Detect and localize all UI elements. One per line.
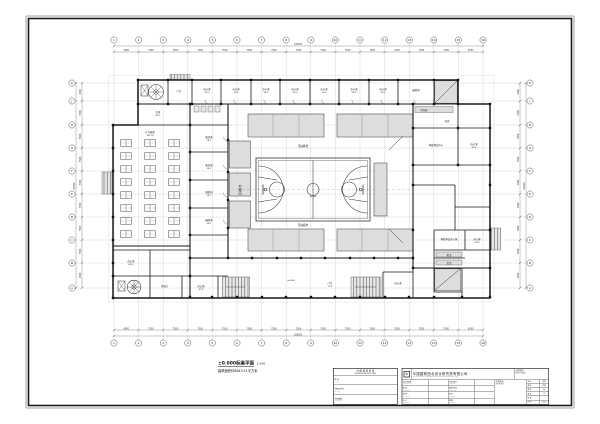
grid-bubble-label: 8 <box>285 341 287 345</box>
column <box>412 267 414 269</box>
room-area: 47.8 <box>199 289 204 291</box>
elevator-nw-x <box>141 85 148 96</box>
dim-text: 7500 <box>79 202 82 208</box>
grid-bubble-label: 11 <box>358 341 362 345</box>
column <box>167 79 169 81</box>
door-arc <box>264 100 268 104</box>
room-area: 77.8 <box>328 286 333 288</box>
dim-total: 61500 <box>73 182 76 190</box>
pingpong-table <box>169 140 180 146</box>
grid-bubble-label: 10 <box>333 38 337 42</box>
dim-total: 106500 <box>294 333 303 336</box>
room-area: 42.1 <box>156 115 161 117</box>
dim-text: 7500 <box>247 49 253 52</box>
column <box>189 275 191 277</box>
pingpong-table <box>121 205 132 211</box>
dim-text: 7500 <box>370 327 376 330</box>
door-arc <box>224 165 228 169</box>
wc-stall <box>194 106 199 112</box>
company-cell: 中国建筑西北设计研究院有限公司 CHINA NORTHWEST ARCHITEC… <box>411 369 514 380</box>
company-logo: 中 <box>402 369 411 380</box>
grid-bubble-label: 9 <box>310 38 312 42</box>
titleblock-signature-row: 设计总负责PROJECT CHIEF审 定APPROVED BY审 核CHECK… <box>402 380 548 404</box>
sig-label-en: DRAWN BY <box>449 402 474 403</box>
room-area: 761.74 <box>146 135 154 137</box>
signature-cell <box>429 398 448 404</box>
dim-text: 7500 <box>517 110 520 116</box>
column <box>191 79 193 81</box>
stand-label: 活动看台 <box>298 223 309 227</box>
room-label: 门厅 <box>328 281 333 285</box>
sig-label-en: PROJECT MGR. <box>449 389 474 390</box>
column <box>112 124 114 126</box>
drawing-note: 建筑面积约6843.51平方米 <box>218 368 338 373</box>
pingpong-table <box>169 231 180 237</box>
dim-text: 7500 <box>79 179 82 185</box>
dim-text: 4500 <box>124 327 130 330</box>
column <box>189 234 191 236</box>
column <box>285 296 287 298</box>
column <box>412 103 414 105</box>
column <box>489 184 491 186</box>
dim-text: 7500 <box>296 49 302 52</box>
column <box>189 124 191 126</box>
column <box>137 79 139 81</box>
spiral-stair-nw-treads <box>149 85 164 100</box>
level-annotation: ±0.000 <box>287 280 295 282</box>
grid-bubble-label: 12 <box>383 38 387 42</box>
drawing-scale: 1:200 <box>257 362 266 366</box>
drawing-title: ±0.000标高平面 <box>218 360 254 368</box>
column <box>397 103 399 105</box>
dim-text: 7500 <box>370 49 376 52</box>
dim-text: 7500 <box>79 225 82 231</box>
column <box>457 103 459 105</box>
dim-text: 7500 <box>517 225 520 231</box>
column <box>334 296 336 298</box>
stamp-row-sub: SEAL No. <box>335 390 397 391</box>
pingpong-table <box>145 153 156 159</box>
stamp-row-sub: VALID DATE <box>335 400 397 401</box>
pingpong-table <box>169 166 180 172</box>
dim-text: 7500 <box>79 248 82 254</box>
column <box>489 229 491 231</box>
dim-text: 4500 <box>517 89 520 95</box>
column <box>489 296 491 298</box>
room-area: 26.0 <box>322 92 327 94</box>
room-label: 体质测试中心 <box>429 143 444 147</box>
signature-cells-1 <box>429 380 449 404</box>
column <box>412 164 414 166</box>
grid-bubble-label: 15 <box>456 38 460 42</box>
sig-label-en: DESIGNED BY <box>403 402 428 403</box>
wc-stall <box>215 106 220 112</box>
sig-row: 设 计DESIGNED BY <box>402 398 428 404</box>
column <box>373 257 375 259</box>
signature-labels-left: 设计总负责PROJECT CHIEF审 定APPROVED BY审 核CHECK… <box>402 380 428 404</box>
stamp-title-en: REGISTERED ARCHITECT STAMP <box>334 373 397 375</box>
grid-bubble-label: F <box>529 169 531 173</box>
room-label: 办公室 <box>350 87 358 91</box>
dim-text: 7500 <box>517 133 520 139</box>
room-label: 更衣室 <box>205 135 213 139</box>
grid-bubble-label: E <box>529 192 531 196</box>
dim-text: 7500 <box>345 327 351 330</box>
column <box>189 296 191 298</box>
dim-text: 7500 <box>247 327 253 330</box>
column <box>368 79 370 81</box>
column <box>236 296 238 298</box>
grid-bubble-label: 13 <box>407 341 411 345</box>
room-label: 办公室 <box>127 259 135 263</box>
grid-bubble-label: 16 <box>481 38 485 42</box>
grid-bubble-label: 13 <box>407 38 411 42</box>
column <box>338 79 340 81</box>
column <box>461 296 463 298</box>
column <box>112 193 114 195</box>
project-name-cell: 工程名称: PROJECT NAME <box>514 369 548 380</box>
interior-steps <box>223 277 382 297</box>
grid-bubble-label: 14 <box>432 38 436 42</box>
grid-bubble-label: 10 <box>333 341 337 345</box>
pingpong-tables <box>121 140 180 237</box>
sig-label-en: PROJECT CHIEF <box>403 383 428 384</box>
pingpong-table <box>121 140 132 146</box>
movable-stage <box>374 163 387 216</box>
dim-text: 4500 <box>79 272 82 278</box>
dim-text: 7500 <box>517 248 520 254</box>
west-entry-steps <box>102 172 112 194</box>
arena-door-leaves <box>389 136 403 243</box>
mini-value: 04 <box>540 389 549 391</box>
column <box>457 127 459 129</box>
titleblock-main: 中 中国建筑西北设计研究院有限公司 CHINA NORTHWEST ARCHIT… <box>402 368 549 405</box>
grid-bubble-label: J <box>71 99 73 103</box>
door-arc <box>205 100 209 104</box>
grid-bubble-label: H <box>529 123 531 127</box>
pingpong-table <box>121 231 132 237</box>
sig-label-en: APPROVED BY <box>403 389 428 390</box>
grid-bubble-label: J <box>529 99 531 103</box>
column <box>384 296 386 298</box>
column <box>112 297 114 299</box>
dim-text: 7500 <box>394 49 400 52</box>
room-area: 28.7 <box>207 223 212 225</box>
room-area: 28.7 <box>207 195 212 197</box>
column <box>137 103 139 105</box>
titleblock-header-row: 中 中国建筑西北设计研究院有限公司 CHINA NORTHWEST ARCHIT… <box>402 369 548 380</box>
company-logo-icon: 中 <box>403 371 409 377</box>
stamp-row-sub: NAME <box>335 381 397 382</box>
room-area: 43.6 <box>475 242 480 244</box>
column <box>261 296 263 298</box>
dim-text: 7500 <box>148 49 154 52</box>
pingpong-table <box>169 218 180 224</box>
stamp-row: 有效期限VALID DATE <box>334 395 397 404</box>
column <box>227 199 229 201</box>
sheet-border-outer <box>26 16 574 408</box>
sheet-info-column: 专 业建 筑图 别建 施图 号04版 次A日 期比 例1:200 <box>527 380 548 404</box>
pingpong-table <box>169 205 180 211</box>
grid-bubble-label: 1 <box>113 341 115 345</box>
grid-bubble-label: 11 <box>358 38 362 42</box>
column <box>112 262 114 264</box>
column <box>112 275 114 277</box>
grid-bubble-label: 1 <box>113 38 115 42</box>
pingpong-table <box>121 218 132 224</box>
stamp-row: 姓 名NAME <box>334 375 397 385</box>
grid-bubble-label: 16 <box>481 341 485 345</box>
pingpong-table <box>169 179 180 185</box>
pingpong-table <box>169 192 180 198</box>
column <box>250 103 252 105</box>
column <box>412 127 414 129</box>
grid-bubble-label: C <box>529 238 531 242</box>
wc-stall <box>201 106 206 112</box>
door-arc <box>234 100 238 104</box>
pingpong-table <box>121 192 132 198</box>
room-area: 26.0 <box>234 92 239 94</box>
pingpong-table <box>145 166 156 172</box>
grid-bubble-label: 15 <box>456 341 460 345</box>
mini-label: 比 例 <box>527 400 540 404</box>
stamp-header: 注 册 建 筑 师 章 REGISTERED ARCHITECT STAMP <box>334 369 397 376</box>
pingpong-table <box>169 153 180 159</box>
column <box>227 257 229 259</box>
grid-bubble-label: H <box>71 123 73 127</box>
room-label: 库房 <box>445 119 450 123</box>
column <box>112 216 114 218</box>
dim-text: 7500 <box>419 49 425 52</box>
stand-top-right <box>337 114 413 137</box>
room-label: 体质测试办公室 <box>441 237 458 241</box>
dim-text: 7500 <box>79 110 82 116</box>
column <box>489 103 491 105</box>
room-label: 女卫 <box>447 261 452 265</box>
dim-text: 7500 <box>443 327 449 330</box>
mini-row: 比 例1:200 <box>527 400 548 404</box>
column <box>300 257 302 259</box>
stamp-row: 资格证书号SEAL No. <box>334 385 397 395</box>
pingpong-table <box>145 231 156 237</box>
room-label: 存包处 <box>420 108 428 112</box>
elevator-sw-x <box>118 281 125 291</box>
column <box>397 257 399 259</box>
column <box>412 184 414 186</box>
pingpong-table <box>121 179 132 185</box>
room-label: 办公室 <box>320 87 328 91</box>
grid-bubble-label: 3 <box>162 38 164 42</box>
dim-text: 7500 <box>517 179 520 185</box>
dim-text: 7500 <box>296 327 302 330</box>
dim-text: 4500 <box>79 89 82 95</box>
spiral-stair-sw-treads <box>127 280 141 294</box>
dim-text: 4500 <box>468 327 474 330</box>
dim-total: 106500 <box>294 43 303 46</box>
room-label: 办公室 <box>470 142 478 146</box>
room-label: 办公室 <box>473 237 481 241</box>
room-label: 男卫 <box>447 253 452 257</box>
room-area: 26.0 <box>264 92 269 94</box>
dim-text: 7500 <box>148 327 154 330</box>
column <box>167 103 169 105</box>
grid-bubble-label: 6 <box>236 38 238 42</box>
grid-bubble-label: 8 <box>285 38 287 42</box>
pingpong-table <box>145 205 156 211</box>
column <box>227 139 229 141</box>
dimensions: 4500750075007500750075007500750075007500… <box>73 43 527 337</box>
room-label: 办公室 <box>394 281 402 285</box>
dim-text: 7500 <box>197 49 203 52</box>
column <box>338 103 340 105</box>
stand-bottom-right <box>337 229 413 251</box>
wc-stall <box>208 106 213 112</box>
signature-cells-2 <box>475 380 495 404</box>
mini-value: A <box>540 393 549 395</box>
column <box>112 147 114 149</box>
sig-row: 制 图DRAWN BY <box>448 398 474 404</box>
column <box>412 257 414 259</box>
stair-se <box>435 269 461 291</box>
column <box>433 296 435 298</box>
column <box>457 164 459 166</box>
room-area: 28.7 <box>207 140 212 142</box>
grid-bubble-label: 4 <box>187 341 189 345</box>
dim-text: 7500 <box>443 49 449 52</box>
north-entry-steps <box>170 75 190 80</box>
column <box>189 179 191 181</box>
grid-bubble-label: 12 <box>383 341 387 345</box>
grid-bubble-label: E <box>71 192 73 196</box>
stand-top-left <box>248 114 324 137</box>
dim-text: 7500 <box>173 327 179 330</box>
room-label: 休息厅 <box>161 284 169 288</box>
column <box>227 227 229 229</box>
project-label-en: PROJECT NAME <box>515 372 547 374</box>
room-label: 器材室 <box>205 218 213 222</box>
drawing-title-block: ±0.000标高平面1:200 建筑面积约6843.51平方米 <box>218 357 338 373</box>
column <box>189 207 191 209</box>
grid-bubble-label: 2 <box>138 341 140 345</box>
dim-text: 7500 <box>271 327 277 330</box>
room-label: 办公室 <box>203 87 211 91</box>
dim-text: 7500 <box>197 327 203 330</box>
door-arc <box>224 193 228 197</box>
dim-text: 7500 <box>419 327 425 330</box>
column <box>433 103 435 105</box>
column <box>433 79 435 81</box>
pingpong-table <box>145 192 156 198</box>
signature-cell <box>475 398 494 404</box>
stand-left-1 <box>230 141 251 168</box>
stand-bottom-left <box>248 229 324 251</box>
stand-label: 活动看台 <box>298 144 309 148</box>
grid-bubble-label: 3 <box>162 341 164 345</box>
column <box>250 79 252 81</box>
column <box>412 229 414 231</box>
drawing-sheet: 4500750075007500750075007500750075007500… <box>0 0 600 424</box>
column <box>397 79 399 81</box>
room-area: 26.0 <box>205 92 210 94</box>
column <box>309 103 311 105</box>
pingpong-table <box>145 179 156 185</box>
grid-lines <box>76 44 527 340</box>
stairs <box>118 81 461 294</box>
column <box>349 257 351 259</box>
column <box>359 296 361 298</box>
dim-text: 7500 <box>517 202 520 208</box>
room-label: 办公室 <box>232 87 240 91</box>
room-label: 办公室 <box>291 87 299 91</box>
room-area: 26.0 <box>381 92 386 94</box>
level-annotation: ±0.000 <box>309 196 317 198</box>
column <box>189 257 191 259</box>
column <box>189 103 191 105</box>
sig-label-en: CHECKED BY <box>403 395 428 396</box>
room-label: 乒乓球室 <box>145 130 155 134</box>
room-label: 办公室 <box>197 284 205 288</box>
column <box>279 79 281 81</box>
stand-label: 活动看台 <box>238 184 242 195</box>
door-arc <box>414 100 418 104</box>
stamp-box: 注 册 建 筑 师 章 REGISTERED ARCHITECT STAMP 姓… <box>333 368 398 405</box>
grid-bubble-label: 7 <box>261 38 263 42</box>
pingpong-table <box>145 140 156 146</box>
door-arc <box>322 100 326 104</box>
grid-bubble-label: 5 <box>211 38 213 42</box>
mini-value: 1:200 <box>540 401 549 403</box>
door-arc <box>293 100 297 104</box>
dim-text: 7500 <box>320 49 326 52</box>
dim-text: 7500 <box>173 49 179 52</box>
room-area: 26.0 <box>293 92 298 94</box>
grid-bubble-label: 7 <box>261 341 263 345</box>
dim-text: 4500 <box>468 49 474 52</box>
room-label: 门厅 <box>177 89 182 93</box>
grid-bubble-label: 14 <box>432 341 436 345</box>
room-area: 63.5 <box>129 264 134 266</box>
column <box>189 151 191 153</box>
dim-text: 7500 <box>271 49 277 52</box>
column <box>489 127 491 129</box>
column <box>309 79 311 81</box>
pingpong-table <box>121 166 132 172</box>
column <box>489 267 491 269</box>
room-area: 26.0 <box>352 92 357 94</box>
column <box>276 257 278 259</box>
door-arc <box>224 220 228 224</box>
title-block: 注 册 建 筑 师 章 REGISTERED ARCHITECT STAMP 姓… <box>333 368 549 405</box>
column <box>211 296 213 298</box>
pingpong-table <box>121 153 132 159</box>
east-entry-steps <box>491 228 501 250</box>
column <box>220 79 222 81</box>
room-area: 28.7 <box>207 168 212 170</box>
dim-total: 61500 <box>523 182 526 190</box>
door-arc <box>352 100 356 104</box>
pingpong-table <box>145 218 156 224</box>
dim-text: 7500 <box>345 49 351 52</box>
room-label: 更衣室 <box>205 163 213 167</box>
sig-label-en: PROOFED BY <box>449 395 474 396</box>
stamp-rows: 姓 名NAME资格证书号SEAL No.有效期限VALID DATE <box>334 375 397 404</box>
sig-label-en: CHIEF ARCH. <box>449 383 474 384</box>
subproject-cell: 子项名称: SUB PROJECT <box>494 380 527 404</box>
column <box>324 257 326 259</box>
column <box>368 103 370 105</box>
dim-text: 7500 <box>222 49 228 52</box>
room-label: 器材室 <box>412 88 420 92</box>
